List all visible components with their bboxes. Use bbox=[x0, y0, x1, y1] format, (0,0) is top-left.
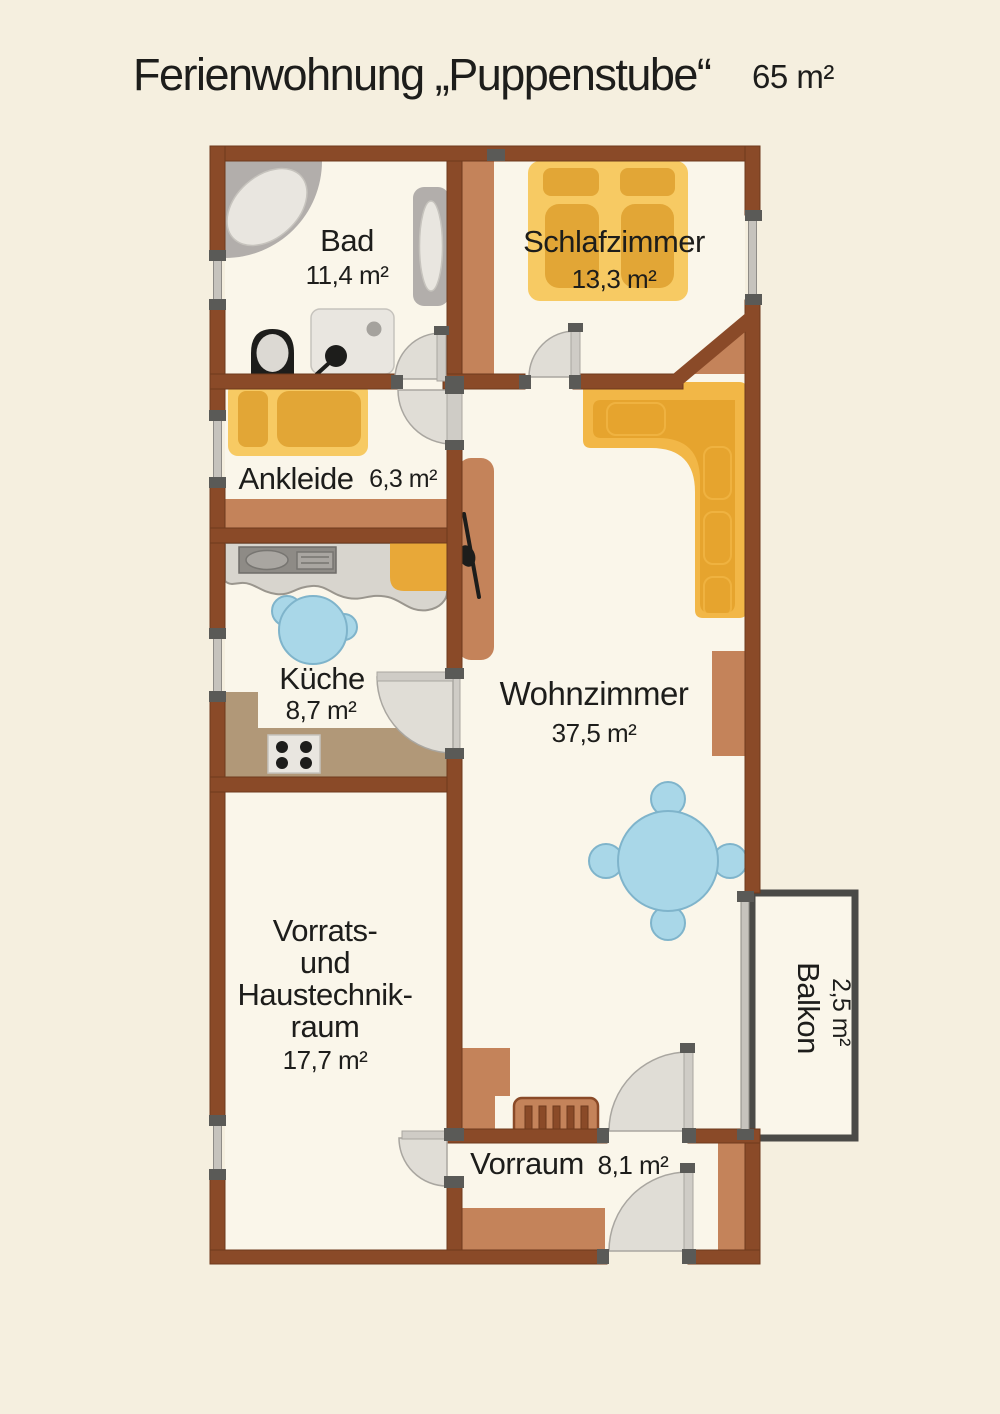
hanger-icon bbox=[553, 1106, 560, 1132]
page-title: Ferienwohnung „Puppenstube“ bbox=[133, 49, 711, 100]
room-area-vorraum: 8,1 m² bbox=[598, 1150, 670, 1180]
kitchen-vent-icon bbox=[297, 552, 333, 569]
room-label-vorraum: Vorraum bbox=[470, 1146, 584, 1181]
room-label-wohnzimmer: Wohnzimmer bbox=[500, 675, 689, 712]
room-label-bad: Bad bbox=[320, 223, 374, 258]
mattress bbox=[277, 391, 361, 447]
kitchen-cabinet bbox=[390, 543, 447, 591]
stove bbox=[268, 735, 320, 773]
room-label-balkon: Balkon bbox=[791, 962, 826, 1054]
room-label-vorrat-1: Vorrats- bbox=[273, 913, 378, 948]
installation-shaft bbox=[462, 161, 494, 374]
burner-icon bbox=[276, 741, 288, 753]
room-label-schlafzimmer: Schlafzimmer bbox=[523, 224, 705, 259]
floorplan-page: Ferienwohnung „Puppenstube“ 65 m² Balkon… bbox=[0, 0, 1000, 1414]
room-label-vorrat-4: raum bbox=[291, 1009, 360, 1044]
bathtub bbox=[413, 187, 449, 306]
kitchen-sink-icon bbox=[246, 551, 288, 570]
corner-wardrobe bbox=[462, 1048, 510, 1096]
room-area-kueche: 8,7 m² bbox=[286, 695, 358, 725]
room-label-kueche: Küche bbox=[279, 661, 364, 696]
sink bbox=[311, 309, 394, 374]
wall-junction-cap bbox=[391, 375, 403, 389]
wall-junction-cap bbox=[487, 149, 505, 161]
page-title-area: 65 m² bbox=[752, 58, 834, 95]
room-area-bad: 11,4 m² bbox=[306, 260, 390, 290]
room-area-balkon: 2,5 m² bbox=[827, 978, 855, 1046]
room-area-schlafzimmer: 13,3 m² bbox=[572, 264, 657, 294]
hall-cabinet bbox=[458, 1208, 605, 1250]
room-label-vorrat-3: Haustechnik- bbox=[238, 977, 413, 1012]
balcony: Balkon 2,5 m² bbox=[752, 893, 855, 1138]
pillow bbox=[238, 391, 268, 447]
room-area-ankleide: 6,3 m² bbox=[369, 465, 437, 493]
hanger-icon bbox=[581, 1106, 588, 1132]
burner-icon bbox=[276, 757, 288, 769]
hanger-icon bbox=[567, 1106, 574, 1132]
toilet bbox=[251, 329, 294, 374]
room-label-vorrat-2: und bbox=[300, 945, 350, 980]
room-label-ankleide: Ankleide bbox=[239, 461, 354, 496]
hall-wardrobe bbox=[718, 1142, 746, 1250]
sideboard bbox=[712, 651, 747, 756]
wall-junction-cap bbox=[445, 376, 464, 388]
floorplan-drawing: Ferienwohnung „Puppenstube“ 65 m² Balkon… bbox=[0, 0, 1000, 1414]
room-area-wohnzimmer: 37,5 m² bbox=[552, 718, 637, 748]
pillow bbox=[620, 168, 675, 196]
single-bed bbox=[228, 382, 368, 456]
wardrobe-band bbox=[225, 499, 450, 528]
room-area-vorrat: 17,7 m² bbox=[283, 1045, 368, 1075]
burner-icon bbox=[300, 757, 312, 769]
corner-wardrobe-step bbox=[462, 1096, 495, 1132]
hanger-icon bbox=[525, 1106, 532, 1132]
burner-icon bbox=[300, 741, 312, 753]
hanger-icon bbox=[539, 1106, 546, 1132]
pillow bbox=[543, 168, 599, 196]
